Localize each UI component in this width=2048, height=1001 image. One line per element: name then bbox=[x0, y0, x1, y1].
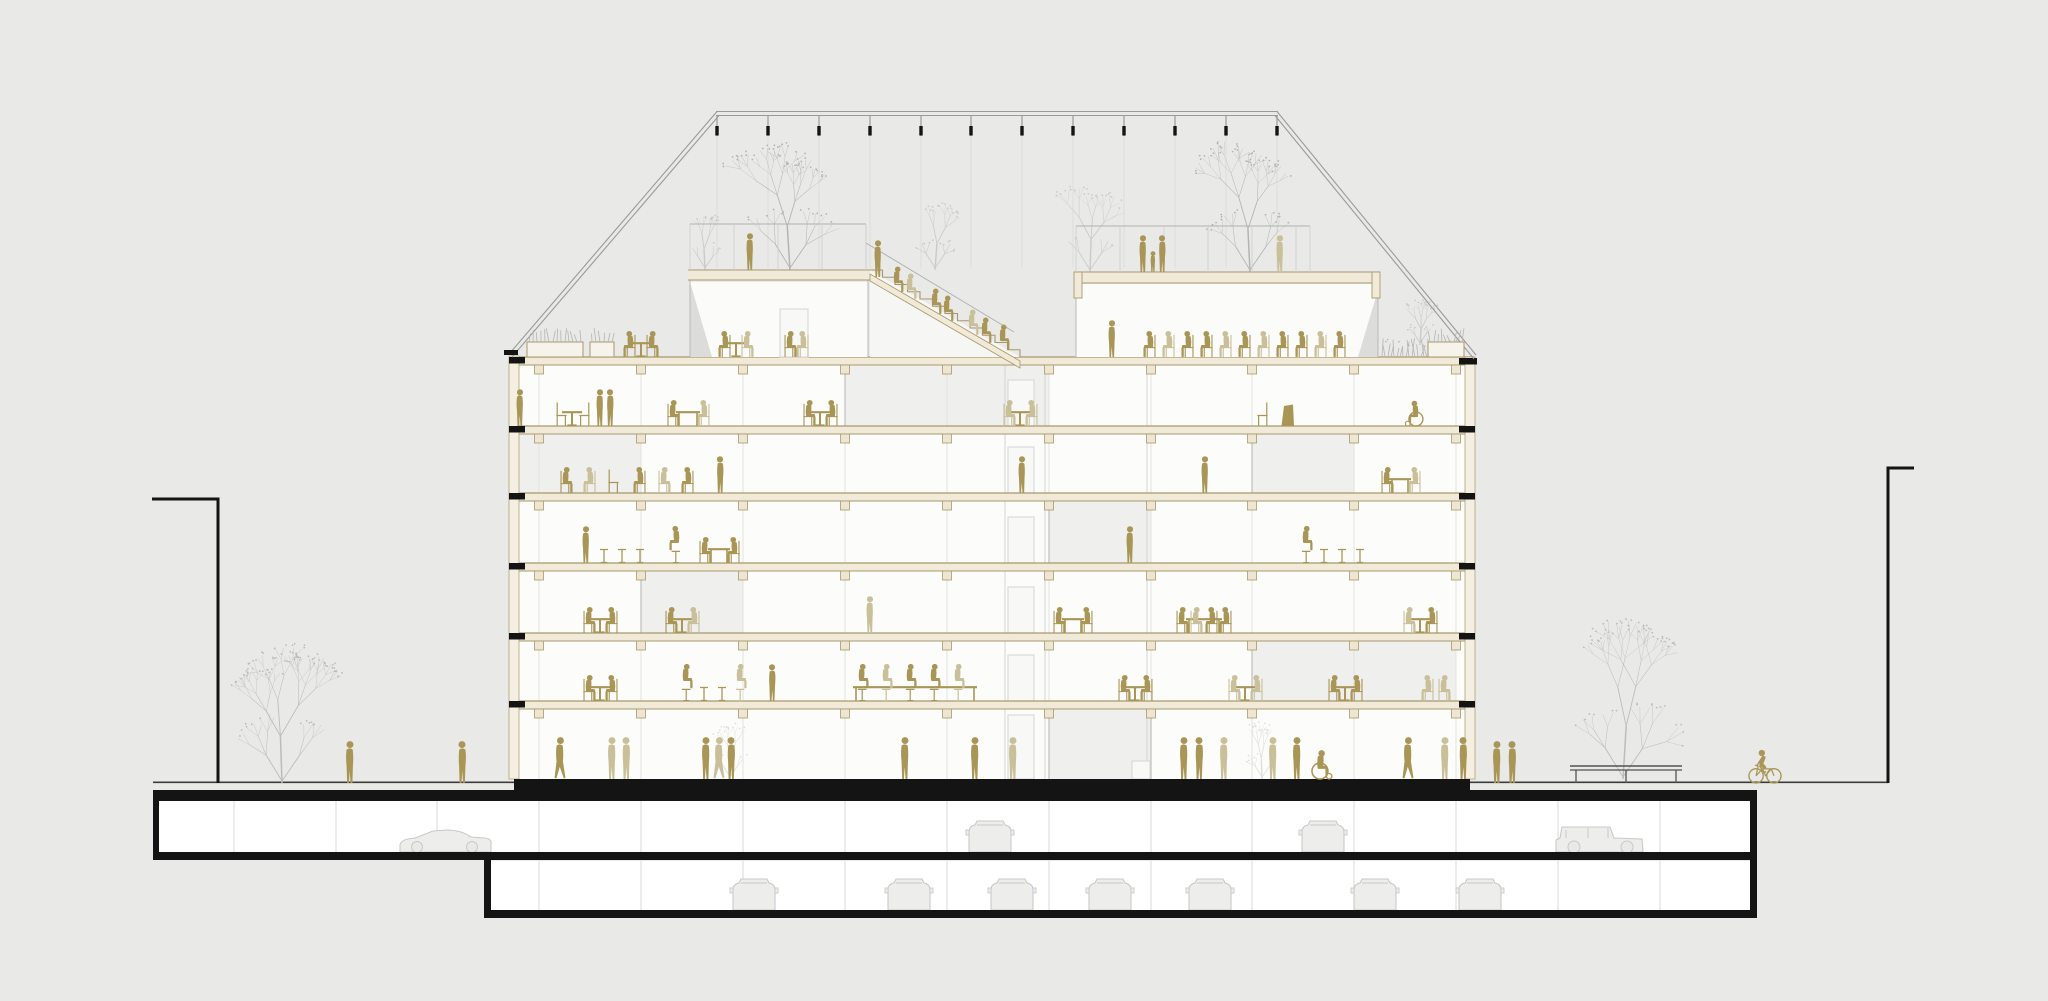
car-silhouette bbox=[1299, 821, 1347, 852]
car-silhouette bbox=[966, 821, 1014, 852]
architectural-section-viewport bbox=[0, 0, 2048, 1001]
car-silhouette bbox=[1086, 879, 1134, 910]
car-silhouette bbox=[988, 879, 1036, 910]
car-silhouette bbox=[1456, 879, 1504, 910]
car-silhouette bbox=[1351, 879, 1399, 910]
car-silhouette bbox=[730, 879, 778, 910]
building-section-drawing bbox=[0, 0, 2048, 1001]
car-silhouette bbox=[885, 879, 933, 910]
car-silhouette bbox=[1186, 879, 1234, 910]
